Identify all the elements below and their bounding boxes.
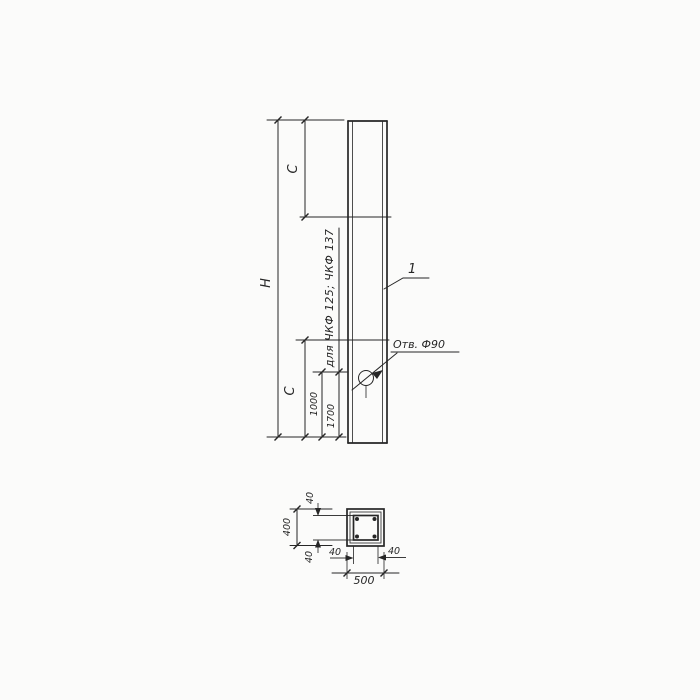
- dim-label-c-bottom: C: [283, 386, 298, 396]
- dim-label-500: 500: [354, 574, 375, 587]
- rebar-dot: [355, 517, 359, 521]
- rebar-dot: [373, 535, 377, 539]
- dim-c-bottom: C: [283, 337, 309, 441]
- dim-cover-top: 40: [305, 492, 353, 516]
- dim-overall-height: H: [259, 117, 282, 441]
- dim-c-top: C: [286, 117, 309, 221]
- dim-label-cover-right: 40: [388, 546, 400, 557]
- cover-top-arrowhead: [315, 508, 321, 516]
- dim-400: 400: [282, 506, 301, 550]
- drawing-sheet: H C C 1000 1700: [0, 0, 700, 700]
- elevation-view: H C C 1000 1700: [259, 117, 459, 444]
- dim-label-1000: 1000: [309, 392, 320, 416]
- dim-label-1700: 1700: [326, 404, 337, 428]
- section-view: 400 40 40 40 40: [282, 492, 406, 587]
- dim-label-cover-left: 40: [329, 547, 341, 558]
- dim-label-400: 400: [282, 518, 293, 536]
- dim-cover-right: 40: [378, 546, 406, 561]
- hole-callout: Отв. Ф90: [352, 338, 459, 398]
- dim-cover-left: 40: [329, 547, 354, 561]
- position-marker: 1: [384, 262, 429, 289]
- dim-1000: 1000: [309, 369, 326, 441]
- rebar-dot: [373, 517, 377, 521]
- position-label: 1: [408, 262, 416, 277]
- hole-leader-line: [352, 353, 397, 390]
- rebar-dot: [355, 535, 359, 539]
- dim-label-cover-bottom: 40: [304, 551, 315, 563]
- technical-drawing: H C C 1000 1700: [0, 0, 700, 700]
- note-rotated: для ЧКФ 125; ЧКФ 137: [323, 229, 336, 369]
- dim-label-cover-top: 40: [305, 492, 316, 504]
- cover-bottom-arrowhead: [315, 540, 321, 548]
- cover-right-arrowhead: [378, 555, 386, 561]
- dim-label-c-top: C: [286, 164, 301, 174]
- section-inner-contour: [350, 512, 381, 543]
- dim-label-h: H: [259, 278, 274, 288]
- position-leader-line: [384, 278, 429, 289]
- hole-label: Отв. Ф90: [393, 338, 445, 351]
